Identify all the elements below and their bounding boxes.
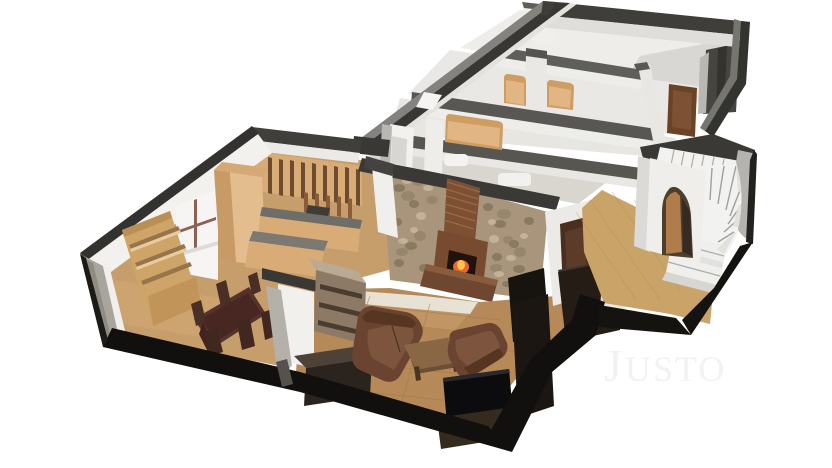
svg-text:J: J: [604, 340, 624, 391]
svg-text:USTO: USTO: [625, 349, 726, 389]
